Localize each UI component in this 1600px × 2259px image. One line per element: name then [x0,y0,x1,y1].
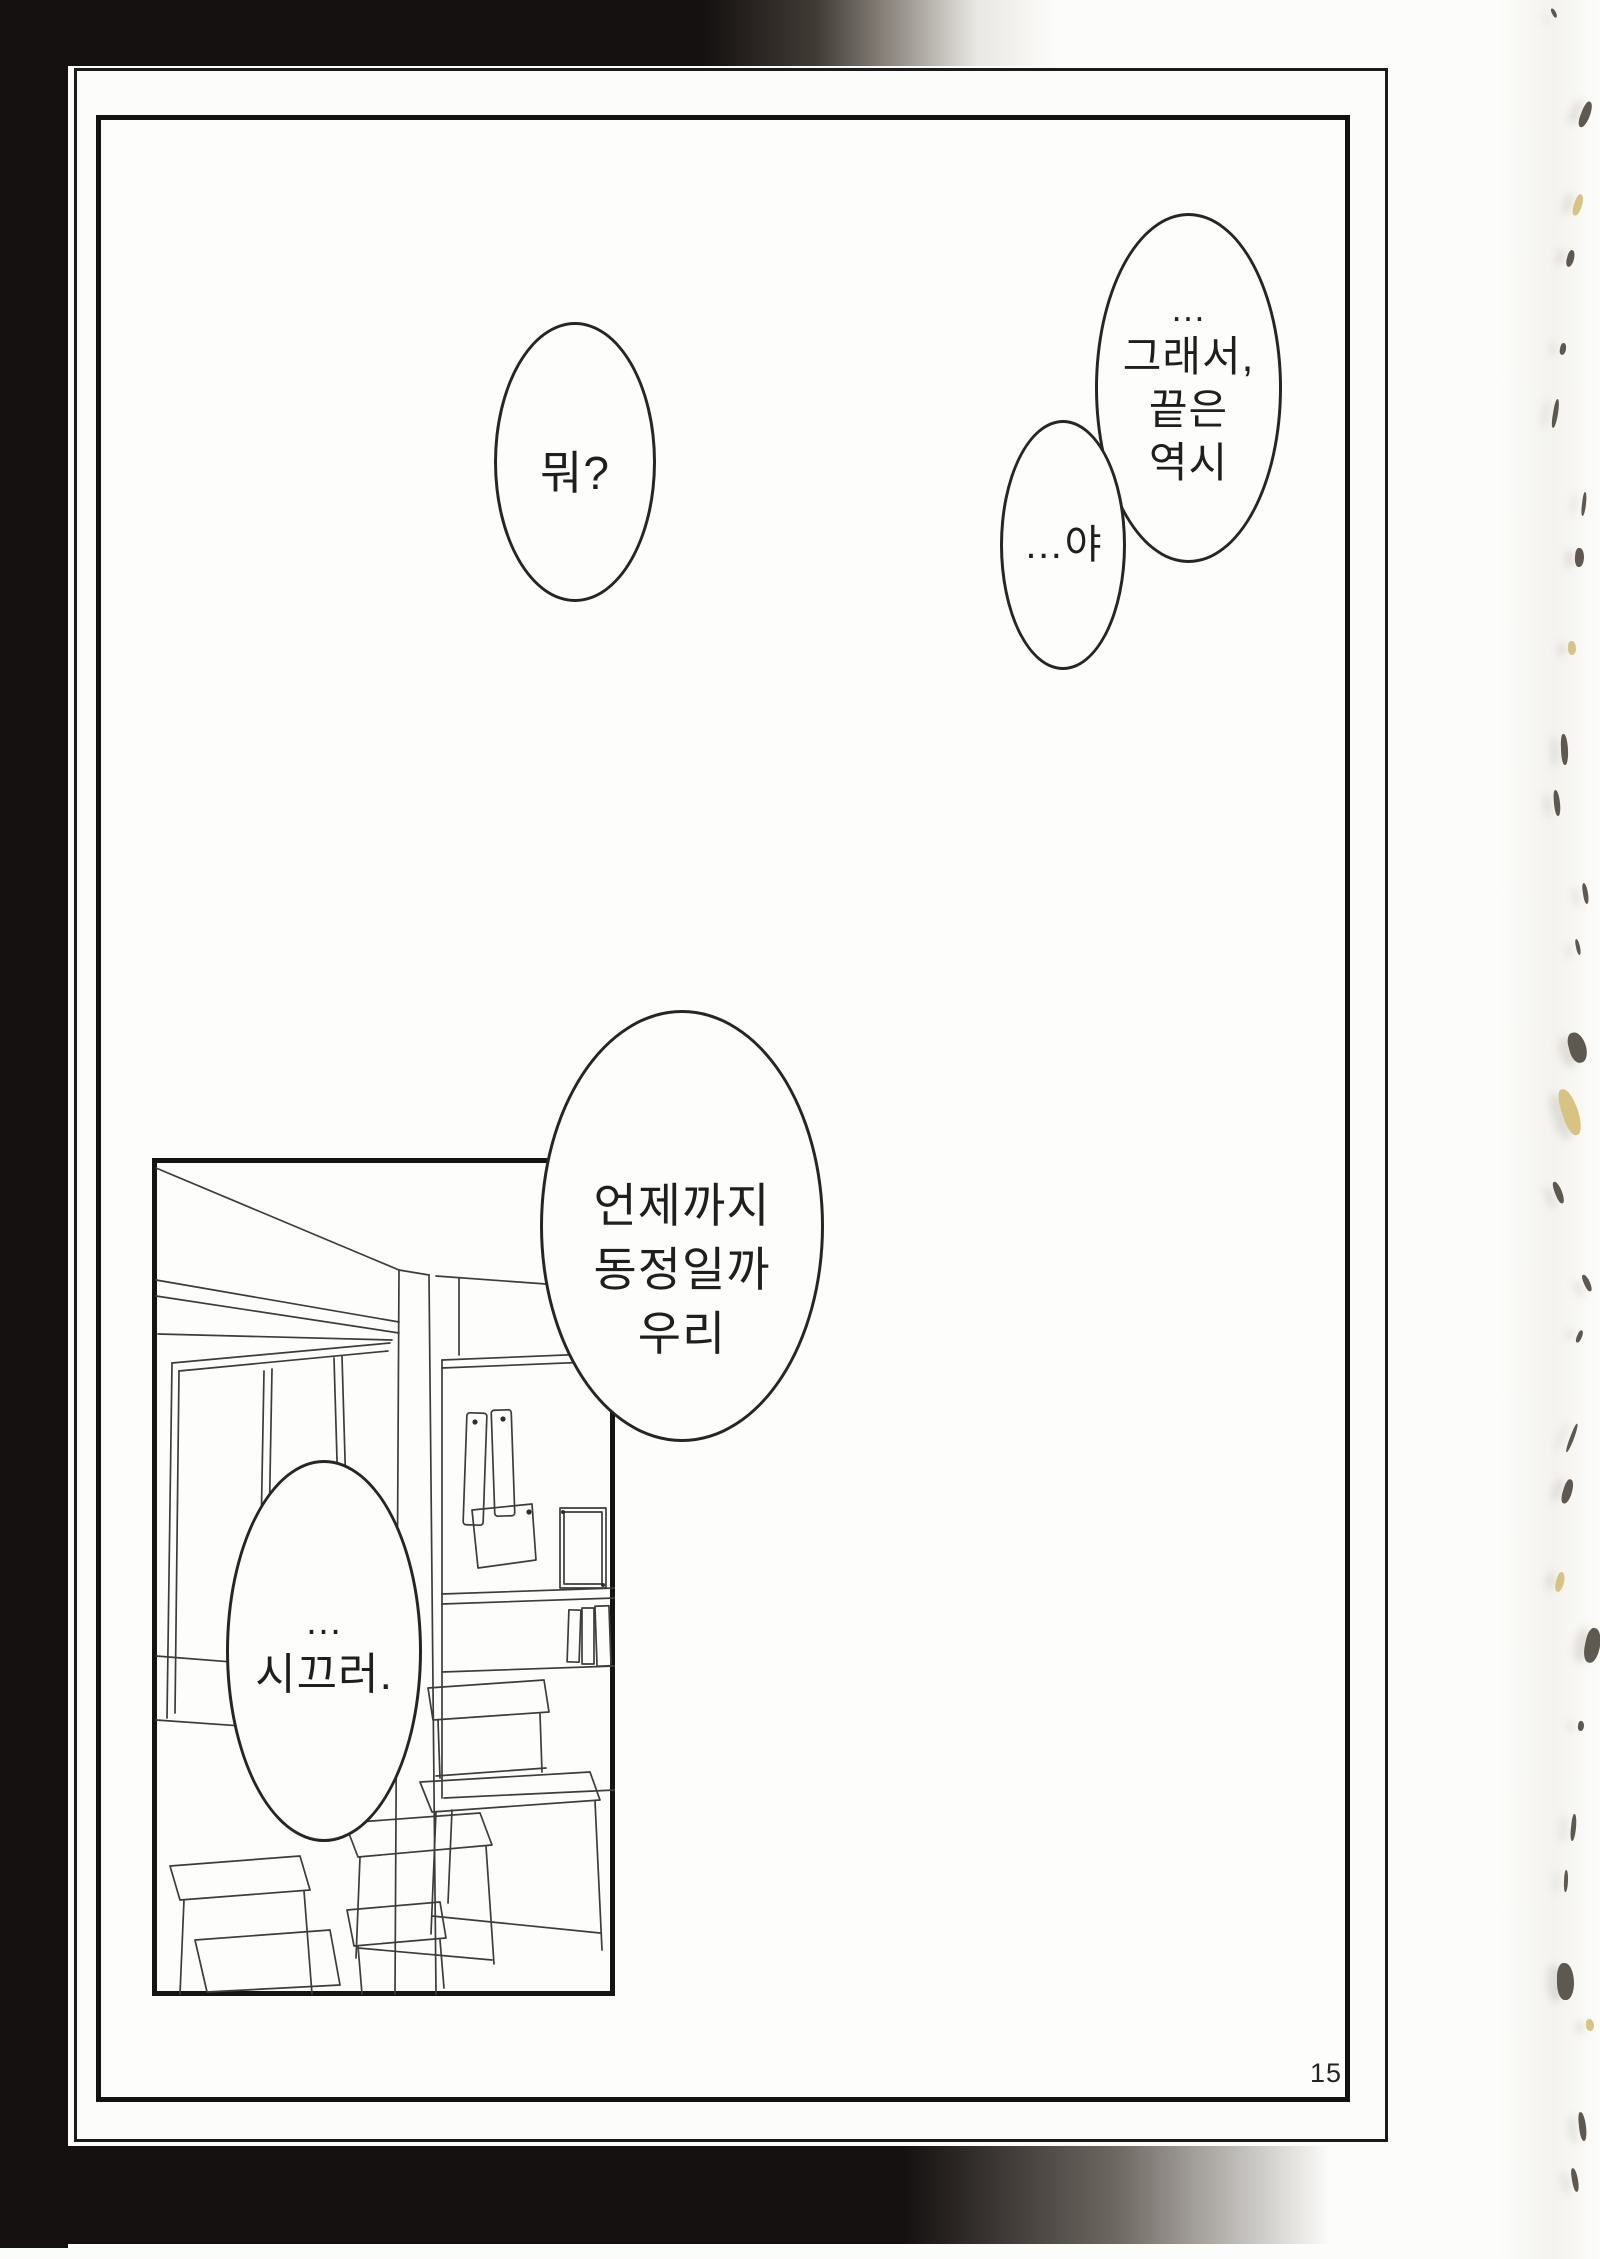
speech-bubble-noisy: … 시끄러. [226,1460,422,1842]
speech-bubble-mwo: 뭐? [494,322,656,602]
bubble-line: 우리 [638,1302,726,1366]
speech-bubble-virgin: 언제까지 동정일까 우리 [540,1010,824,1442]
speech-bubble-ya: …야 [1000,420,1126,670]
scanned-manga-page: … 그래서, 끝은 역시 …야 뭐? 언제까지 동정일까 우리 … 시끄러. 1… [0,0,1600,2259]
scan-left-margin [0,0,68,2248]
edge-mark [1586,2019,1595,2031]
bubble-line: 시끄러. [255,1647,393,1702]
scan-top-margin [0,0,1600,66]
bubble-line: 뭐? [540,445,610,503]
edge-mark [1557,1963,1574,2000]
bubble-line: 끝은 [1149,384,1228,437]
bubble-line: … [1170,286,1207,331]
page-number: 15 [1290,2058,1342,2089]
bubble-line: …야 [1024,520,1103,570]
bubble-line: 그래서, [1123,331,1255,384]
bubble-line: 역시 [1149,437,1228,490]
bubble-line: … [305,1599,344,1647]
scan-bottom-margin [0,2146,1330,2244]
bubble-line: 동정일까 [594,1238,771,1302]
paper-edge-shade [1498,0,1600,2259]
bubble-line: 언제까지 [594,1174,771,1238]
edge-mark [1568,641,1576,655]
